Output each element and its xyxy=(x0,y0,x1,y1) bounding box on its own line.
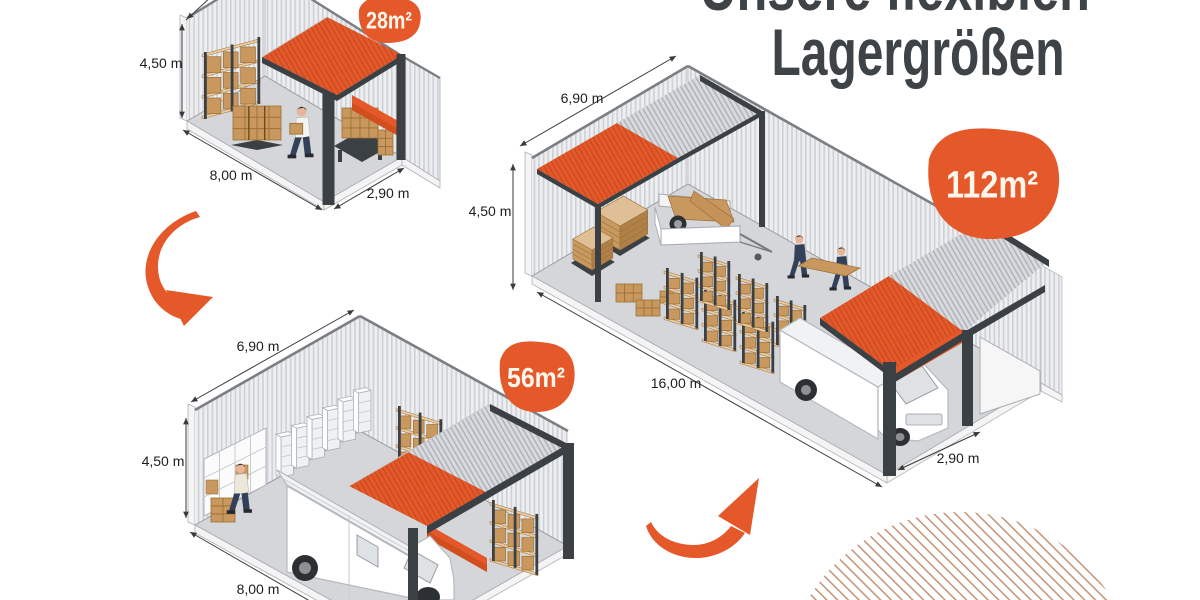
svg-text:2,90 m: 2,90 m xyxy=(367,185,410,201)
svg-text:4,50 m: 4,50 m xyxy=(142,453,185,469)
svg-text:56m²: 56m² xyxy=(507,362,565,393)
svg-text:Lagergrößen: Lagergrößen xyxy=(772,15,1065,89)
svg-text:4,50 m: 4,50 m xyxy=(469,203,512,219)
svg-text:112m²: 112m² xyxy=(946,164,1038,206)
svg-text:8,00 m: 8,00 m xyxy=(210,167,253,183)
svg-text:16,00 m: 16,00 m xyxy=(651,375,702,391)
svg-text:8,00 m: 8,00 m xyxy=(237,581,280,597)
svg-text:2,90 m: 2,90 m xyxy=(937,450,980,466)
svg-text:28m²: 28m² xyxy=(366,7,412,34)
svg-text:6,90 m: 6,90 m xyxy=(561,90,604,106)
svg-text:6,90 m: 6,90 m xyxy=(237,338,280,354)
svg-text:4,50 m: 4,50 m xyxy=(140,55,183,71)
